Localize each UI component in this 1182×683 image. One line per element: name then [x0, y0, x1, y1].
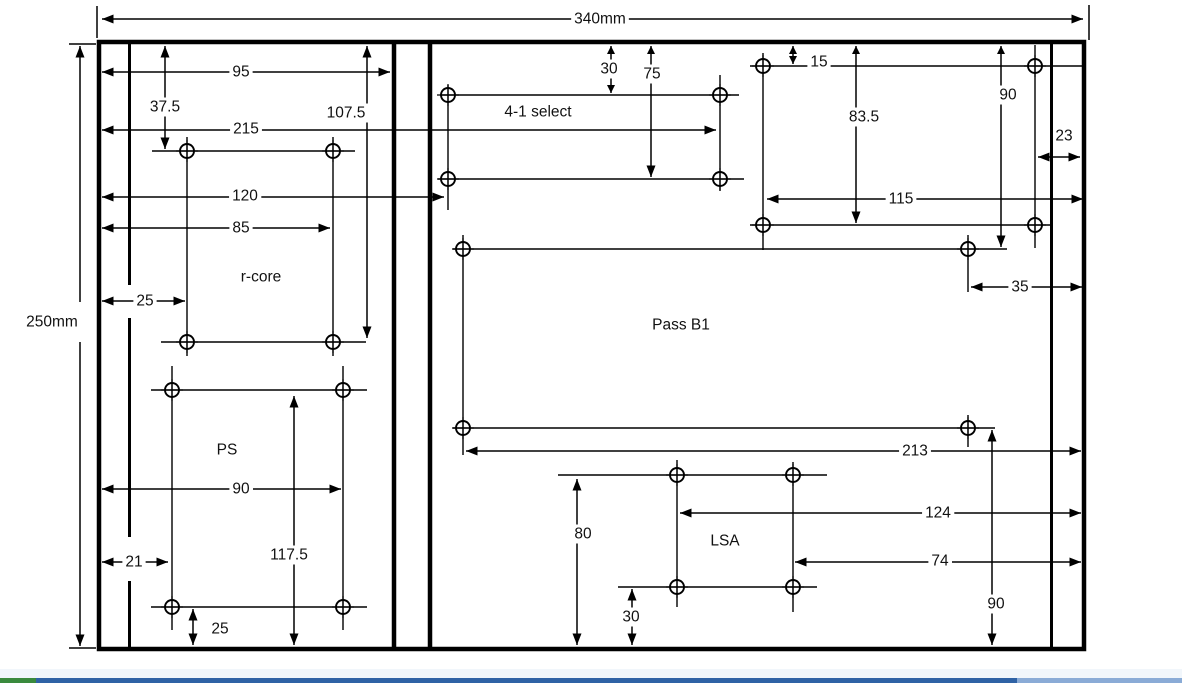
dim-label-15: 15: [810, 54, 827, 71]
panel-dimension-drawing: 340mm 250mm 95 37.5 215 107.5 120 85 25 …: [0, 0, 1182, 683]
overall-width-label: 340mm: [574, 11, 626, 28]
dim-label-95: 95: [232, 64, 249, 81]
dim-label-25-ps: 25: [211, 621, 228, 638]
mounting-hole: [452, 417, 474, 439]
mounting-hole: [752, 55, 774, 77]
mounting-hole: [709, 84, 731, 106]
mounting-hole: [666, 576, 688, 598]
dim-label-21: 21: [125, 554, 142, 571]
component-label-rcore: r-core: [241, 269, 281, 286]
dim-label-80: 80: [574, 526, 592, 543]
mounting-hole: [957, 417, 979, 439]
dim-label-83-5: 83.5: [849, 109, 879, 126]
mounting-hole: [709, 168, 731, 190]
dim-label-74: 74: [931, 553, 949, 570]
component-label-ps: PS: [217, 442, 238, 459]
mounting-hole: [332, 379, 354, 401]
rcore-dimensions: 95 37.5 215 107.5 120 85 25 r-core: [102, 46, 716, 338]
dim-label-117-5: 117.5: [270, 547, 308, 564]
footer-lightblue-segment: [1017, 678, 1182, 683]
dim-label-23: 23: [1055, 128, 1072, 145]
dim-label-115: 115: [889, 191, 914, 208]
bottom-window-edge: [0, 669, 1182, 683]
dim-label-213: 213: [902, 443, 928, 460]
mounting-hole: [176, 331, 198, 353]
dimension-drawing-page: 340mm 250mm 95 37.5 215 107.5 120 85 25 …: [0, 0, 1182, 683]
ps-hole-lines: [151, 366, 367, 630]
dim-label-107-5: 107.5: [327, 105, 366, 122]
footer-light-band: [0, 669, 1182, 678]
mounting-hole: [1024, 55, 1046, 77]
select41-hole-lines: [438, 75, 744, 210]
lsa-dimensions: LSA 80 124 74 30: [571, 479, 1081, 645]
dim-label-215: 215: [233, 121, 259, 138]
dim-label-75: 75: [643, 66, 660, 83]
overall-height-label: 250mm: [26, 314, 78, 331]
overall-height-dimension: 250mm: [26, 44, 96, 648]
mounting-hole: [782, 464, 804, 486]
dim-label-124: 124: [925, 505, 951, 522]
mounting-hole: [176, 140, 198, 162]
mounting-hole: [782, 576, 804, 598]
dim-label-120: 120: [232, 188, 258, 205]
mounting-hole: [161, 379, 183, 401]
mounting-hole: [332, 596, 354, 618]
dim-label-30-lsa: 30: [622, 609, 640, 626]
overall-width-dimension: 340mm: [97, 5, 1089, 40]
dim-label-90-bottomright: 90: [987, 596, 1005, 613]
extension-tick: [69, 44, 96, 648]
dim-label-25-rcore: 25: [136, 293, 153, 310]
mounting-hole: [437, 84, 459, 106]
footer-green-segment: [0, 678, 36, 683]
mounting-hole: [666, 464, 688, 486]
dim-label-90-ps: 90: [232, 481, 250, 498]
mounting-hole: [452, 238, 474, 260]
component-label-passb1: Pass B1: [652, 317, 710, 334]
mounting-hole: [957, 238, 979, 260]
dim-label-85: 85: [232, 220, 249, 237]
dim-label-37-5: 37.5: [150, 99, 180, 116]
mounting-hole: [1024, 214, 1046, 236]
mounting-hole: [752, 214, 774, 236]
mounting-hole: [322, 331, 344, 353]
component-label-lsa: LSA: [710, 533, 740, 550]
passb1-dimensions: Pass B1 35 213 90: [466, 278, 1082, 646]
hole-connector-lines: [151, 45, 1083, 630]
select41-dimensions: 30 75 4-1 select: [504, 46, 663, 177]
dim-label-35: 35: [1011, 279, 1028, 296]
dim-label-90-topright: 90: [999, 87, 1017, 104]
dim-label-30-select: 30: [600, 61, 618, 78]
mounting-hole: [161, 596, 183, 618]
footer-blue-segment: [36, 678, 1017, 683]
mounting-hole: [437, 168, 459, 190]
mounting-hole: [322, 140, 344, 162]
rcore-hole-lines: [152, 137, 366, 356]
component-label-select41: 4-1 select: [504, 104, 572, 121]
passb1-hole-lines: [453, 235, 1007, 455]
